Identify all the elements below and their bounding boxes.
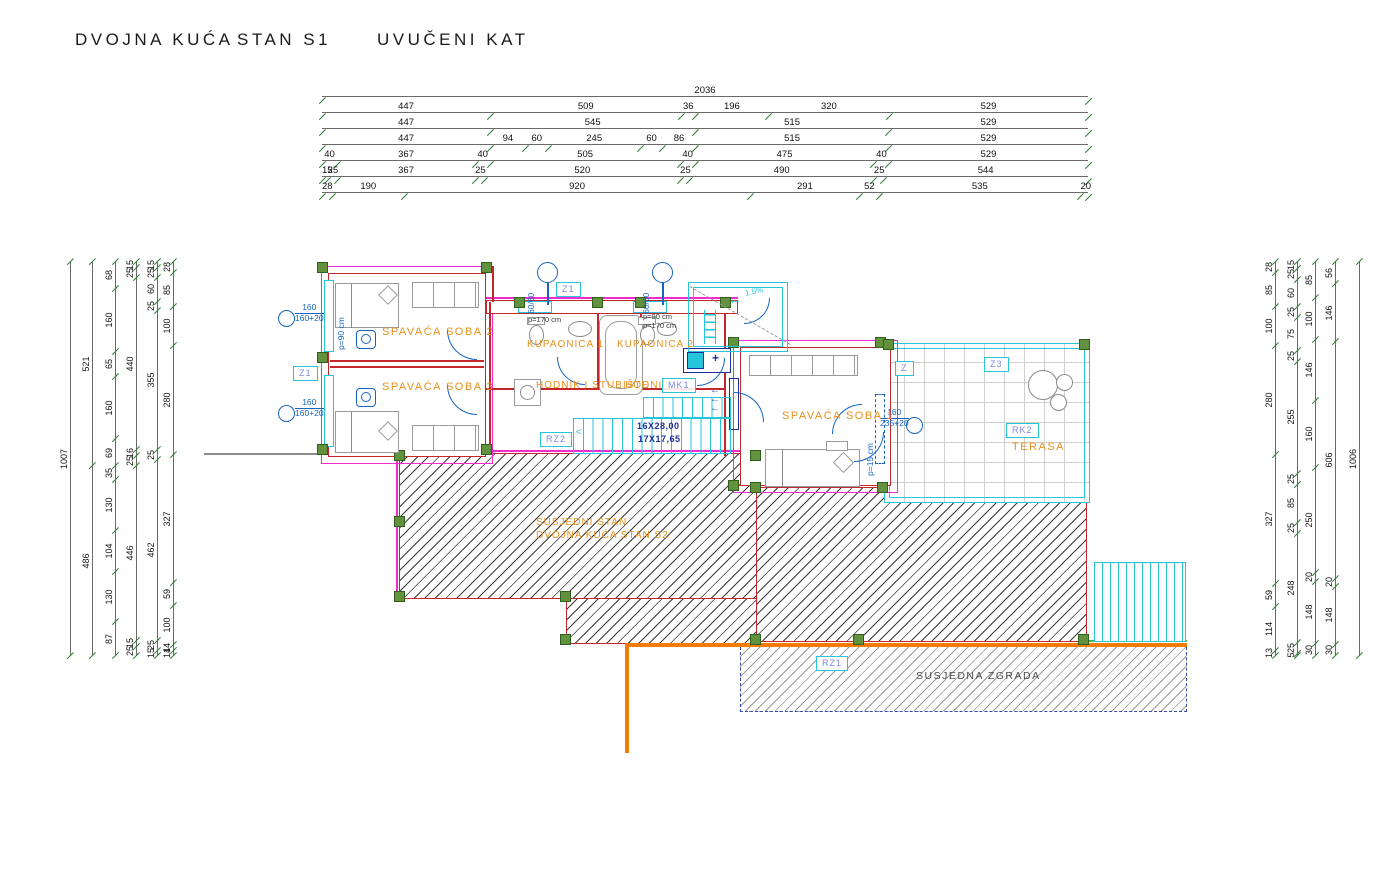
tag-mk1: MK1 — [662, 378, 696, 393]
wardrobe — [412, 282, 479, 308]
dim-segment: 245 — [548, 130, 640, 145]
dim-segment: 65 — [103, 351, 116, 376]
dim-segment: 68 — [103, 262, 116, 289]
dim-value: 280 — [163, 393, 172, 408]
dim-value: 248 — [1287, 580, 1296, 595]
dim-value: 529 — [889, 150, 1088, 160]
bench — [826, 441, 848, 451]
window-mark-circle — [278, 405, 295, 422]
column — [750, 634, 761, 645]
slope-arrow-icon: ← — [728, 292, 742, 306]
corridor-wall — [489, 302, 491, 454]
ladder-icon — [704, 310, 716, 344]
dim-segment: 490 — [690, 162, 874, 177]
dim-segment: 327 — [161, 455, 174, 583]
dim-value: 25 — [680, 166, 689, 176]
dim-segment: 85 — [1263, 273, 1276, 306]
dim-value: 25 — [1287, 523, 1296, 533]
dim-segment: 2036 — [322, 82, 1088, 97]
vent-stem — [547, 283, 549, 305]
top-dim-row-2: 44750936196320529 — [322, 98, 1088, 113]
dim-segment: 56 — [1323, 262, 1336, 284]
dim-segment: 1007 — [58, 262, 71, 656]
vent-stem — [662, 283, 664, 305]
dim-value: 529 — [889, 102, 1088, 112]
column — [317, 262, 328, 273]
dim-value: 2036 — [322, 86, 1088, 96]
left-dimension-block: 1007 521486 6816065160693513010413087 15… — [50, 262, 175, 656]
dim-segment: 25 — [1285, 269, 1298, 280]
dim-segment: 25 — [145, 450, 158, 460]
dim-value: 255 — [1287, 410, 1296, 425]
window-soba3 — [324, 375, 334, 447]
bed-line — [782, 449, 783, 487]
column — [560, 634, 571, 645]
dim-value: 68 — [105, 270, 114, 280]
boundary-line-orange — [625, 643, 1187, 647]
parapet-label: p=170 cm — [643, 322, 676, 330]
dim-segment: 25 — [1285, 522, 1298, 533]
dim-value: 250 — [1305, 513, 1314, 528]
dim-value: 447 — [322, 102, 490, 112]
dim-value: 25 — [126, 646, 135, 656]
dim-segment: 196 — [695, 98, 769, 113]
vent-pipe-icon — [652, 262, 673, 283]
stair-direction-arrow-icon: < — [576, 428, 582, 438]
dim-segment: 60 — [145, 278, 158, 301]
dim-value: 60 — [1287, 288, 1296, 298]
dim-segment: 447 — [322, 130, 490, 145]
dim-segment: 60 — [640, 130, 663, 145]
dim-segment: 280 — [161, 345, 174, 455]
dim-segment: 114 — [1263, 606, 1276, 651]
dim-segment: 446 — [124, 466, 137, 641]
floor-plan-canvas: DVOJNA KUĆA STAN S1 UVUČENI KAT — [0, 0, 1375, 888]
dim-segment: 25 — [1285, 306, 1298, 317]
dim-value: 100 — [163, 618, 172, 633]
dim-segment: 160 — [103, 377, 116, 440]
dim-segment: 40 — [475, 146, 490, 161]
column — [317, 352, 328, 363]
dim-segment: 160 — [103, 289, 116, 352]
dim-segment: 104 — [103, 531, 116, 572]
drawing-title-unit: STAN S1 — [237, 30, 331, 50]
left-dim-chain-4: 152544016254461525 — [124, 262, 137, 656]
window-soba2 — [324, 280, 334, 352]
dim-segment: 248 — [1285, 533, 1298, 642]
dim-value: 544 — [883, 166, 1088, 176]
dim-segment: 25 — [1285, 350, 1298, 361]
vent-pipe-icon — [537, 262, 558, 283]
wall-connector — [492, 266, 494, 302]
dim-value: 59 — [1265, 590, 1274, 600]
tag-z1-left: Z1 — [293, 366, 318, 381]
dim-value: 25 — [1287, 307, 1296, 317]
parapet-label: p=90 cm — [337, 298, 346, 350]
window-height: 160+20 — [295, 314, 324, 324]
dim-value: 160 — [105, 400, 114, 415]
dim-value: 280 — [1265, 393, 1274, 408]
dim-value: 25 — [1287, 351, 1296, 361]
left-dim-chain-2: 521486 — [80, 262, 93, 656]
dim-segment: 250 — [1303, 468, 1316, 573]
dim-value: 114 — [1265, 621, 1274, 635]
column — [481, 262, 492, 273]
dim-segment: 520 — [485, 162, 681, 177]
boundary-line-orange — [625, 643, 629, 753]
top-dim-row-6: 1525367255202549025544 — [322, 162, 1088, 177]
left-dim-chain-1: 1007 — [58, 262, 71, 656]
dim-segment: 25 — [328, 162, 337, 177]
dim-value: 25 — [147, 301, 156, 311]
dim-segment: 100 — [1263, 306, 1276, 345]
dim-value: 160 — [1305, 427, 1314, 442]
dim-value: 87 — [105, 634, 114, 644]
dim-end-tick — [1084, 194, 1091, 201]
dim-segment: 25 — [680, 162, 689, 177]
dim-value: 30 — [1305, 645, 1314, 655]
dim-segment: 59 — [161, 583, 174, 606]
column — [1079, 339, 1090, 350]
dim-value: 446 — [126, 546, 135, 561]
dim-value: 75 — [1287, 329, 1296, 339]
dim-segment: 28 — [322, 178, 333, 193]
dim-value: 148 — [1305, 605, 1314, 620]
dim-segment: 40 — [680, 146, 695, 161]
dim-segment: 475 — [695, 146, 874, 161]
dim-value: 85 — [1305, 275, 1314, 285]
dim-segment: 462 — [145, 460, 158, 641]
lamp-icon — [361, 334, 371, 344]
dim-segment: 20 — [1303, 573, 1316, 581]
dim-value: 35 — [105, 468, 114, 478]
dim-segment: 86 — [663, 130, 695, 145]
dim-segment: 75 — [1285, 317, 1298, 350]
room-label-kupaonica1: KUPAONICA 1 — [527, 340, 604, 350]
dim-segment: 291 — [750, 178, 859, 193]
dim-segment: 60 — [526, 130, 549, 145]
dim-value: 146 — [1305, 363, 1314, 378]
dim-value: 606 — [1325, 452, 1334, 467]
bed-line — [351, 411, 352, 453]
dim-segment: 36 — [681, 98, 695, 113]
dim-value: 36 — [681, 102, 695, 112]
dim-segment: 85 — [1285, 485, 1298, 523]
right-dim-chain-4: 561466062014830 — [1323, 262, 1336, 656]
terrace-chair — [1050, 394, 1067, 411]
dim-segment: 355 — [145, 311, 158, 450]
dim-segment: 130 — [103, 571, 116, 622]
column — [394, 516, 405, 527]
dim-value: 25 — [874, 166, 883, 176]
dim-value: 545 — [490, 118, 695, 128]
dim-value: 30 — [1325, 645, 1334, 655]
left-dim-chain-5: 15256025355254622515 — [145, 262, 158, 656]
sink — [568, 321, 592, 337]
right-dim-chain-3: 851001461602502014830 — [1303, 262, 1316, 656]
dim-segment: 100 — [161, 306, 174, 345]
dim-value: 40 — [874, 150, 889, 160]
room-label-soba2: SPAVAĆA SOBA 2 — [382, 327, 494, 338]
dim-value: 28 — [322, 182, 333, 192]
dim-segment: 20 — [1080, 178, 1088, 193]
partition-wall — [330, 366, 484, 368]
stair-spec-line1: 16X28,00 — [637, 422, 680, 431]
lamp-icon — [361, 392, 371, 402]
exterior-step-strip — [1094, 562, 1186, 642]
dim-value: 28 — [1265, 262, 1274, 272]
column — [1078, 634, 1089, 645]
dim-segment: 367 — [337, 162, 475, 177]
parapet-label: p=15 cm — [866, 428, 875, 476]
room-label-soba3: SPAVAĆA SOBA 3 — [382, 382, 494, 393]
right-dim-chain-5: 1006 — [1347, 262, 1360, 656]
column — [560, 591, 571, 602]
dim-value: 367 — [337, 150, 475, 160]
dim-segment: 447 — [322, 98, 490, 113]
drawing-title-building: DVOJNA KUĆA — [75, 30, 233, 50]
right-dim-chain-1: 28851002803275911413 — [1263, 262, 1276, 656]
dim-value: 25 — [1287, 269, 1296, 279]
vent-size-label: 60/60 — [527, 284, 536, 314]
wardrobe — [749, 355, 858, 376]
column — [750, 482, 761, 493]
dim-value: 509 — [490, 102, 681, 112]
dim-segment: 25 — [874, 162, 883, 177]
dim-value: 920 — [404, 182, 750, 192]
dim-segment: 40 — [874, 146, 889, 161]
dim-value: 355 — [147, 373, 156, 388]
tag-z: Z — [895, 361, 914, 376]
column — [394, 591, 405, 602]
dim-value: 52 — [860, 182, 880, 192]
vent-size-label: 60/60 — [642, 284, 651, 314]
parapet-label: p=170 cm — [528, 316, 561, 324]
column — [728, 480, 739, 491]
dim-value: 65 — [105, 359, 114, 369]
terrace-sliding-door — [875, 394, 885, 464]
column — [853, 634, 864, 645]
dim-value: 100 — [1265, 318, 1274, 333]
dim-segment: 100 — [1303, 298, 1316, 340]
dim-value: 190 — [333, 182, 404, 192]
column — [317, 444, 328, 455]
dim-segment: 544 — [883, 162, 1088, 177]
dim-segment: 69 — [103, 439, 116, 466]
dim-segment: 146 — [1303, 340, 1316, 401]
window-size-label: 160 160+20 — [295, 303, 324, 324]
dim-value: 440 — [126, 356, 135, 371]
dim-value: 521 — [82, 356, 91, 371]
dim-value: 40 — [322, 150, 337, 160]
neighbour-building-label: SUSJEDNA ZGRADA — [916, 670, 1041, 682]
dim-value: 529 — [889, 118, 1088, 128]
dim-value: 160 — [105, 312, 114, 327]
dim-value: 515 — [695, 118, 889, 128]
left-dim-chain-6: 2885100280327591001414 — [161, 262, 174, 656]
dim-segment: 521 — [80, 262, 93, 466]
dim-value: 146 — [1325, 305, 1334, 320]
dim-value: 291 — [750, 182, 859, 192]
tag-z3: Z3 — [984, 357, 1009, 372]
dim-value: 327 — [163, 511, 172, 526]
window-height: 160+20 — [295, 409, 324, 419]
dim-segment: 25 — [145, 268, 158, 278]
dim-segment: 505 — [490, 146, 680, 161]
column — [592, 297, 603, 308]
dim-segment: 59 — [1263, 583, 1276, 606]
column — [481, 444, 492, 455]
dim-value: 56 — [1325, 268, 1334, 278]
dim-segment: 486 — [80, 466, 93, 656]
dim-segment: 529 — [889, 114, 1088, 129]
dim-segment: 509 — [490, 98, 681, 113]
dim-value: 100 — [1305, 311, 1314, 326]
dim-segment: 1006 — [1347, 262, 1360, 656]
dim-value: 60 — [526, 134, 549, 144]
stair-spec-line2: 17X17,65 — [638, 435, 681, 444]
dim-segment: 85 — [1303, 262, 1316, 298]
dim-value: 148 — [1325, 608, 1334, 623]
dim-segment: 52 — [860, 178, 880, 193]
top-dim-row-5: 40367405054047540529 — [322, 146, 1088, 161]
lower-roof-edge — [204, 453, 322, 455]
tag-z1-top: Z1 — [556, 282, 581, 297]
dim-segment: 148 — [1303, 581, 1316, 643]
dim-value: 320 — [769, 102, 889, 112]
dim-segment: 535 — [879, 178, 1080, 193]
dim-value: 505 — [490, 150, 680, 160]
dim-value: 104 — [105, 543, 114, 558]
dim-value: 86 — [663, 134, 695, 144]
dim-segment: 87 — [103, 622, 116, 656]
top-dimension-block: 2036 44750936196320529 447545515529 4479… — [322, 82, 1088, 194]
dim-segment: 320 — [769, 98, 889, 113]
dim-segment: 529 — [889, 130, 1088, 145]
dim-value: 130 — [105, 589, 114, 604]
dim-segment: 60 — [1285, 280, 1298, 306]
dim-value: 515 — [695, 134, 889, 144]
column — [877, 482, 888, 493]
left-dim-chain-3: 6816065160693513010413087 — [103, 262, 116, 656]
dim-value: 245 — [548, 134, 640, 144]
dim-value: 520 — [485, 166, 681, 176]
dim-value: 40 — [680, 150, 695, 160]
dim-segment: 327 — [1263, 455, 1276, 583]
dim-segment: 146 — [1323, 284, 1336, 341]
column — [883, 339, 894, 350]
tag-rz2: RZ2 — [540, 432, 572, 447]
parapet-label: p=90 cm — [643, 313, 672, 321]
dim-value: 85 — [1265, 285, 1274, 295]
dim-value: 25 — [1287, 474, 1296, 484]
top-dim-row-4: 44794602456086515529 — [322, 130, 1088, 145]
dim-value: 25 — [147, 268, 156, 278]
dim-segment: 100 — [161, 606, 174, 645]
washing-machine-drum — [520, 385, 535, 400]
dim-segment: 529 — [889, 98, 1088, 113]
dim-segment: 160 — [1303, 401, 1316, 468]
right-dimension-block: 28851002803275911413 1525602575252552585… — [1256, 262, 1361, 656]
dim-value: 20 — [1080, 182, 1088, 192]
dim-segment: 25 — [124, 268, 137, 278]
dim-value: 25 — [328, 166, 337, 176]
dim-value: 130 — [105, 498, 114, 513]
dim-segment: 545 — [490, 114, 695, 129]
door-swing — [697, 358, 725, 386]
dim-segment: 25 — [1285, 474, 1298, 485]
wardrobe — [412, 425, 479, 451]
dim-segment: 94 — [490, 130, 525, 145]
dim-segment: 40 — [322, 146, 337, 161]
dim-segment: 920 — [404, 178, 750, 193]
drawing-title-floor: UVUČENI KAT — [377, 30, 529, 50]
dim-value: 462 — [147, 542, 156, 557]
dim-segment: 148 — [1323, 586, 1336, 644]
dim-value: 85 — [163, 285, 172, 295]
dim-segment: 280 — [1263, 345, 1276, 455]
room-label-terasa: TERASA — [1012, 442, 1065, 453]
dim-value: 25 — [126, 456, 135, 466]
dim-value: 1007 — [60, 449, 69, 469]
neighbour-unit-hatch — [566, 598, 758, 644]
neighbour-unit-label-1: SUSJEDNI STAN — [536, 518, 627, 528]
dim-value: 59 — [163, 589, 172, 599]
tag-rk2: RK2 — [1006, 423, 1039, 438]
top-dim-row-7: 281909202915253520 — [322, 178, 1088, 193]
dim-value: 60 — [640, 134, 663, 144]
top-dim-row-3: 447545515529 — [322, 114, 1088, 129]
dim-value: 529 — [889, 134, 1088, 144]
dim-value: 196 — [695, 102, 769, 112]
dim-segment: 515 — [695, 114, 889, 129]
dim-value: 28 — [163, 262, 172, 272]
dim-segment: 35 — [103, 466, 116, 480]
dim-segment: 529 — [889, 146, 1088, 161]
dim-value: 490 — [690, 166, 874, 176]
dim-value: 475 — [695, 150, 874, 160]
dim-value: 60 — [147, 284, 156, 294]
column — [750, 450, 761, 461]
window-mark-circle — [278, 310, 295, 327]
column — [514, 297, 525, 308]
tag-rz1: RZ1 — [816, 656, 848, 671]
window-size-label: 160 160+20 — [295, 398, 324, 419]
dim-segment: 606 — [1323, 341, 1336, 578]
dim-value: 1006 — [1349, 449, 1358, 469]
dim-segment: 515 — [695, 130, 889, 145]
dim-segment: 20 — [1323, 578, 1336, 586]
dim-value: 85 — [1287, 498, 1296, 508]
dim-segment: 85 — [161, 273, 174, 306]
top-dim-row-1: 2036 — [322, 82, 1088, 97]
dim-segment: 447 — [322, 114, 490, 129]
dim-value: 367 — [337, 166, 475, 176]
dim-value: 25 — [475, 166, 484, 176]
neighbour-unit-hatch — [756, 487, 1087, 642]
dim-value: 486 — [82, 553, 91, 568]
terrace-chair — [1056, 374, 1073, 391]
stair-upper-flight — [643, 397, 731, 418]
dim-segment: 367 — [337, 146, 475, 161]
bed-line — [351, 283, 352, 328]
dim-segment: 440 — [124, 278, 137, 450]
dim-segment: 190 — [333, 178, 404, 193]
right-dim-chain-2: 152560257525255258525248255 — [1285, 262, 1298, 656]
dim-segment: 25 — [475, 162, 484, 177]
dim-segment: 130 — [103, 480, 116, 531]
dim-value: 535 — [879, 182, 1080, 192]
